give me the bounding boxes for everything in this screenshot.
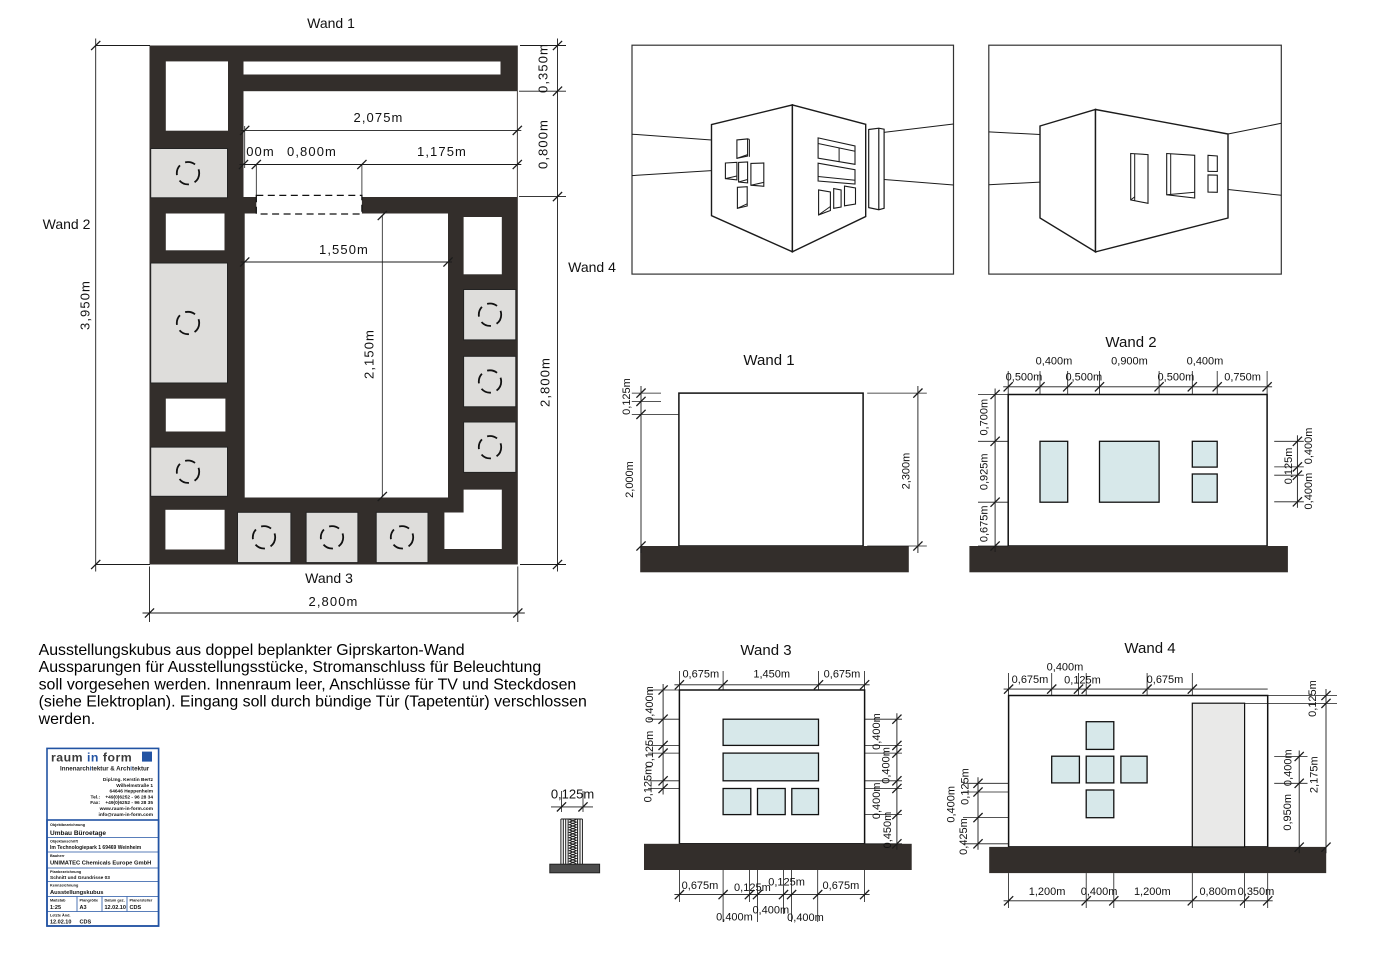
svg-text:0,400m: 0,400m (1282, 749, 1294, 786)
svg-text:Wand 1: Wand 1 (743, 352, 794, 369)
svg-text:Dipl.Ing. Kerstin Bertz: Dipl.Ing. Kerstin Bertz (103, 777, 154, 783)
svg-text:Innenarchitektur & Architektur: Innenarchitektur & Architektur (60, 766, 150, 773)
svg-text:0,925m: 0,925m (979, 453, 991, 490)
svg-text:1,550m: 1,550m (319, 242, 369, 257)
svg-text:2,300m: 2,300m (901, 453, 913, 490)
svg-text:Ausstellungskubus: Ausstellungskubus (50, 890, 103, 896)
svg-text:1,175m: 1,175m (417, 144, 467, 159)
svg-text:1,450m: 1,450m (753, 669, 790, 681)
svg-text:0,675m: 0,675m (682, 669, 719, 681)
svg-text:0,400m: 0,400m (644, 686, 656, 723)
svg-text:1,200m: 1,200m (1134, 886, 1171, 898)
svg-text:3,950m: 3,950m (78, 280, 93, 330)
svg-text:12.02.10: 12.02.10 (50, 920, 71, 926)
svg-text:0,400m: 0,400m (1303, 473, 1315, 510)
svg-text:raum in form: raum in form (51, 751, 132, 765)
svg-text:0,400m: 0,400m (752, 905, 789, 917)
svg-text:Fax: +49(0)6252 - 96 28 35: Fax: +49(0)6252 - 96 28 35 (90, 800, 153, 806)
svg-text:Datum gez.: Datum gez. (105, 899, 125, 903)
svg-text:Wand 3: Wand 3 (740, 642, 791, 659)
svg-text:Wand 2: Wand 2 (43, 216, 91, 232)
svg-text:Bauherr: Bauherr (50, 854, 65, 858)
svg-text:0,125m: 0,125m (1307, 680, 1319, 717)
svg-text:Letzte Änd.: Letzte Änd. (50, 914, 70, 918)
svg-text:CDS: CDS (130, 905, 142, 911)
svg-text:0,125m: 0,125m (1283, 448, 1295, 485)
svg-text:2,150m: 2,150m (362, 329, 377, 379)
svg-text:0,125m: 0,125m (551, 787, 594, 802)
svg-text:0,500m: 0,500m (1065, 372, 1102, 384)
svg-text:Kennzeichnung: Kennzeichnung (50, 884, 79, 888)
svg-text:0,675m: 0,675m (823, 880, 860, 892)
svg-text:Objektbezeichnung: Objektbezeichnung (50, 823, 86, 827)
svg-text:0,675m: 0,675m (824, 669, 861, 681)
svg-text:0,400m: 0,400m (1303, 428, 1315, 465)
svg-text:0,400m: 0,400m (871, 713, 883, 750)
svg-text:0,800m: 0,800m (1199, 886, 1236, 898)
svg-text:0,400m: 0,400m (881, 747, 893, 784)
svg-text:Wand 4: Wand 4 (568, 259, 616, 275)
svg-text:00m: 00m (246, 144, 275, 159)
svg-text:2,075m: 2,075m (354, 110, 404, 125)
svg-text:0,125m: 0,125m (644, 731, 656, 768)
svg-text:Wand 2: Wand 2 (1105, 334, 1156, 351)
svg-text:64646 Heppenheim: 64646 Heppenheim (110, 789, 153, 795)
svg-text:0,400m: 0,400m (1187, 356, 1224, 368)
svg-text:Wand 1: Wand 1 (307, 15, 355, 31)
svg-text:0,400m: 0,400m (1036, 356, 1073, 368)
svg-text:0,400m: 0,400m (946, 786, 958, 823)
svg-text:Wand 4: Wand 4 (1124, 640, 1175, 657)
svg-text:Objektanschrift: Objektanschrift (50, 840, 79, 844)
svg-text:0,675m: 0,675m (1147, 674, 1184, 686)
svg-text:Wilhelmstraße 1: Wilhelmstraße 1 (116, 783, 153, 789)
svg-text:Wand 3: Wand 3 (305, 570, 353, 586)
svg-text:2,800m: 2,800m (309, 594, 359, 609)
svg-text:0,500m: 0,500m (1158, 372, 1195, 384)
svg-text:0,400m: 0,400m (716, 911, 753, 923)
svg-text:0,425m: 0,425m (958, 818, 970, 855)
svg-text:Umbau Büroetage: Umbau Büroetage (50, 830, 106, 837)
svg-text:0,675m: 0,675m (1012, 674, 1049, 686)
svg-text:UNIMATEC Chemicals Europe GmbH: UNIMATEC Chemicals Europe GmbH (50, 861, 151, 867)
svg-text:0,125m: 0,125m (1064, 675, 1101, 687)
svg-text:1,200m: 1,200m (1029, 886, 1066, 898)
svg-text:0,675m: 0,675m (682, 880, 719, 892)
svg-text:0,750m: 0,750m (1224, 372, 1261, 384)
svg-text:0,675m: 0,675m (979, 505, 991, 542)
svg-text:0,350m: 0,350m (1238, 886, 1275, 898)
svg-text:0,400m: 0,400m (1081, 886, 1118, 898)
svg-text:0,125m: 0,125m (734, 882, 771, 894)
svg-text:0,400m: 0,400m (787, 912, 824, 924)
svg-text:1:25: 1:25 (50, 905, 61, 911)
svg-text:0,125m: 0,125m (960, 768, 972, 805)
svg-text:0,900m: 0,900m (1111, 356, 1148, 368)
svg-text:www.raum-in-form.com: www.raum-in-form.com (99, 806, 153, 812)
svg-text:0,450m: 0,450m (882, 812, 894, 849)
svg-text:Maßstab: Maßstab (50, 899, 66, 903)
svg-text:0,125m: 0,125m (621, 378, 633, 415)
svg-text:Planbezeichnung: Planbezeichnung (50, 870, 82, 874)
svg-text:Tel.: +49(0)6252 - 96 28 34: Tel.: +49(0)6252 - 96 28 34 (91, 794, 154, 800)
svg-text:0,800m: 0,800m (536, 119, 551, 169)
svg-text:0,500m: 0,500m (1006, 372, 1043, 384)
svg-text:0,125m: 0,125m (768, 877, 805, 889)
svg-text:0,950m: 0,950m (1282, 794, 1294, 831)
svg-text:Schnitt und Grundrisse 03: Schnitt und Grundrisse 03 (50, 875, 110, 881)
svg-text:0,800m: 0,800m (287, 144, 337, 159)
svg-text:A3: A3 (80, 905, 87, 911)
svg-text:12.02.10: 12.02.10 (105, 905, 126, 911)
svg-text:0,700m: 0,700m (979, 399, 991, 436)
svg-text:0,350m: 0,350m (536, 43, 551, 93)
svg-text:Planersteller: Planersteller (130, 899, 153, 903)
svg-text:info@raum-in-form.com: info@raum-in-form.com (98, 812, 153, 818)
svg-text:Plangröße: Plangröße (80, 899, 99, 903)
svg-text:CDS: CDS (80, 920, 92, 926)
svg-text:Im Technologiepark 1 69469 We: Im Technologiepark 1 69469 Weinheim (50, 845, 142, 851)
svg-text:2,175m: 2,175m (1309, 756, 1321, 793)
svg-text:0,125m: 0,125m (643, 766, 655, 803)
svg-text:2,000m: 2,000m (624, 461, 636, 498)
svg-text:0,400m: 0,400m (1047, 662, 1084, 674)
svg-text:2,800m: 2,800m (538, 357, 553, 407)
